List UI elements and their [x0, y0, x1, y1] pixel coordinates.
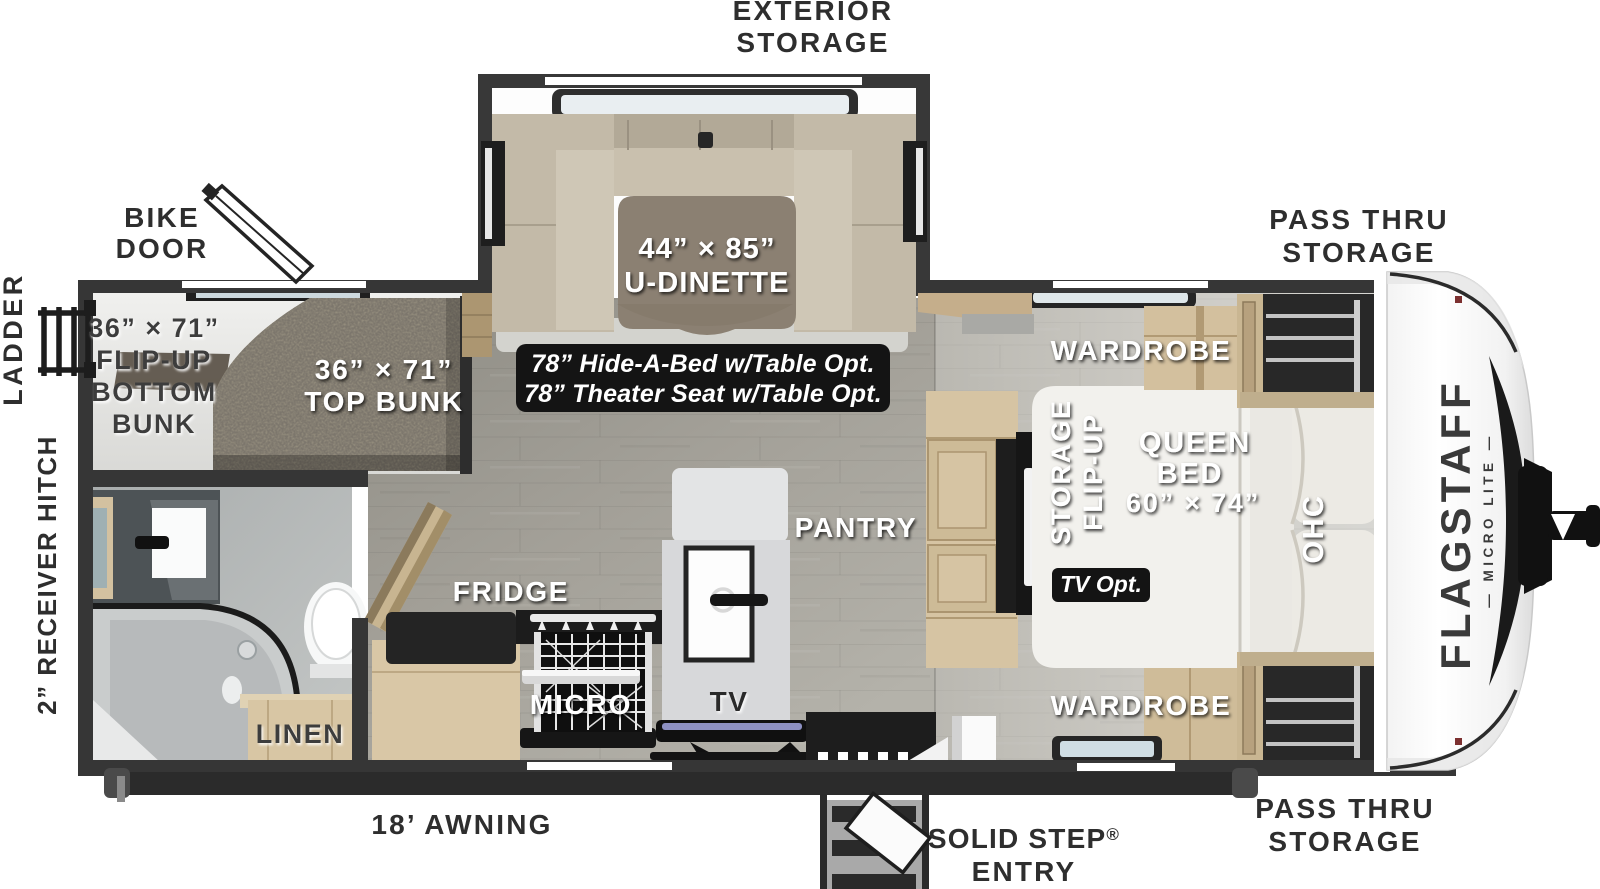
- svg-text:FLAGSTAFF: FLAGSTAFF: [1432, 378, 1479, 670]
- svg-text:LADDER: LADDER: [0, 272, 28, 406]
- svg-text:STORAGE: STORAGE: [1282, 237, 1435, 268]
- svg-text:STORAGE: STORAGE: [736, 27, 889, 58]
- svg-text:FLIP-UP: FLIP-UP: [1078, 413, 1108, 531]
- svg-text:U-DINETTE: U-DINETTE: [624, 267, 789, 299]
- svg-text:LINEN: LINEN: [256, 719, 345, 749]
- svg-text:2” RECEIVER HITCH: 2” RECEIVER HITCH: [32, 435, 62, 715]
- svg-text:BOTTOM: BOTTOM: [91, 377, 217, 407]
- svg-text:SOLID STEP®: SOLID STEP®: [928, 823, 1120, 854]
- svg-text:WARDROBE: WARDROBE: [1051, 690, 1232, 721]
- svg-text:PANTRY: PANTRY: [795, 512, 918, 543]
- svg-text:WARDROBE: WARDROBE: [1051, 335, 1232, 366]
- svg-text:18’ AWNING: 18’ AWNING: [371, 809, 552, 840]
- svg-text:TV Opt.: TV Opt.: [1060, 571, 1142, 597]
- svg-text:STORAGE: STORAGE: [1268, 826, 1421, 857]
- svg-text:ENTRY: ENTRY: [972, 856, 1077, 887]
- svg-text:36” × 71”: 36” × 71”: [88, 313, 219, 343]
- svg-text:44” × 85”: 44” × 85”: [638, 233, 775, 265]
- svg-text:BUNK: BUNK: [112, 409, 196, 439]
- svg-text:— MICRO LITE —: — MICRO LITE —: [1481, 432, 1496, 608]
- svg-text:60” × 74”: 60” × 74”: [1126, 488, 1260, 518]
- svg-text:FRIDGE: FRIDGE: [453, 576, 570, 607]
- svg-text:36” × 71”: 36” × 71”: [315, 354, 453, 385]
- svg-text:78” Theater Seat w/Table Opt.: 78” Theater Seat w/Table Opt.: [524, 380, 882, 408]
- svg-text:MICRO: MICRO: [530, 689, 632, 720]
- svg-text:OHC: OHC: [1298, 495, 1330, 564]
- svg-text:QUEEN: QUEEN: [1139, 427, 1251, 459]
- svg-text:TV: TV: [710, 686, 749, 717]
- svg-text:FLIP-UP: FLIP-UP: [96, 345, 212, 375]
- svg-text:BIKE: BIKE: [124, 202, 200, 233]
- svg-text:EXTERIOR: EXTERIOR: [733, 0, 894, 26]
- svg-text:TOP BUNK: TOP BUNK: [304, 386, 464, 417]
- svg-text:DOOR: DOOR: [116, 233, 209, 264]
- svg-text:STORAGE: STORAGE: [1046, 399, 1076, 545]
- svg-text:78” Hide-A-Bed w/Table Opt.: 78” Hide-A-Bed w/Table Opt.: [531, 350, 874, 378]
- svg-text:PASS THRU: PASS THRU: [1255, 793, 1435, 824]
- svg-text:PASS THRU: PASS THRU: [1269, 204, 1449, 235]
- svg-text:BED: BED: [1157, 458, 1224, 490]
